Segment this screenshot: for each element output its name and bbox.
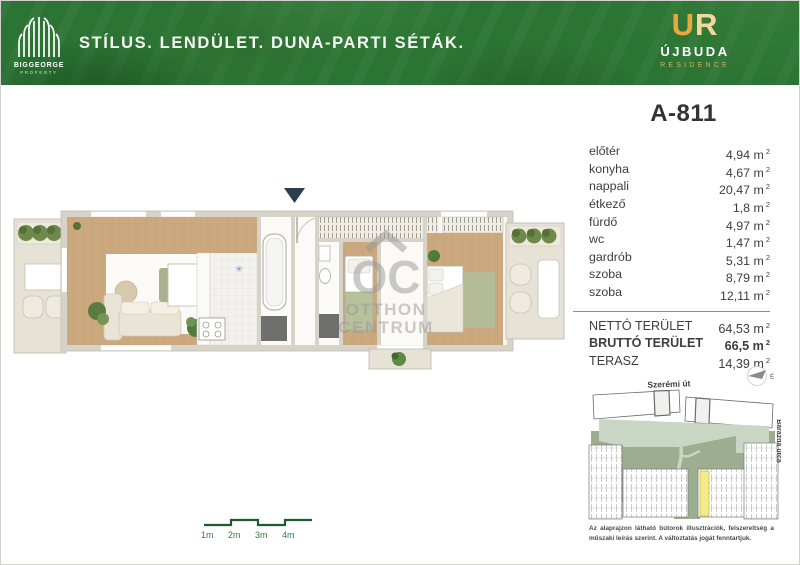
room-row: étkező1,8 m2 (589, 198, 770, 216)
total-name: BRUTTÓ TERÜLET (589, 336, 703, 354)
room-row: szoba12,11 m2 (589, 286, 770, 304)
plant-icon (186, 317, 196, 327)
wardrobe-shelving (317, 217, 437, 239)
terrace-right-plants (512, 229, 557, 244)
room-row: wc1,47 m2 (589, 233, 770, 251)
plant-icon (97, 313, 109, 325)
plant-icon (73, 222, 81, 230)
room-area: 5,31 m2 (726, 251, 770, 269)
room-name: konyha (589, 163, 629, 181)
header-banner: BIGGEORGE PROPERTY STÍLUS. LENDÜLET. DUN… (1, 1, 799, 85)
room-row: nappali20,47 m2 (589, 180, 770, 198)
total-row-gross: BRUTTÓ TERÜLET66,5 m2 (589, 336, 770, 354)
lounger (538, 260, 559, 318)
room-name: gardrób (589, 251, 632, 269)
room-area: 4,97 m2 (726, 216, 770, 234)
total-area: 64,53 m2 (718, 319, 770, 337)
svg-text:OC: OC (352, 251, 421, 303)
terrace-left-table (25, 264, 61, 290)
svg-text:CENTRUM: CENTRUM (338, 318, 434, 337)
site-plan: Szerémi út É Barázda ut (586, 363, 781, 523)
svg-text:3m: 3m (255, 530, 268, 540)
room-area: 20,47 m2 (719, 180, 770, 198)
terrace-left (14, 219, 66, 353)
unit-data-panel: A-811 előtér4,94 m2 konyha4,67 m2 nappal… (589, 100, 770, 371)
disclaimer-text: Az alaprajzon látható bútorok illusztrác… (589, 524, 774, 543)
washer (318, 314, 340, 338)
kitchen: ✳ (197, 253, 259, 345)
biggeorge-logo: BIGGEORGE PROPERTY (11, 7, 69, 79)
room-name: nappali (589, 180, 629, 198)
wardrobe-shelving (443, 217, 503, 233)
room-area: 4,67 m2 (726, 163, 770, 181)
plant-icon (428, 250, 440, 262)
dining-table (168, 264, 198, 306)
scale-line (204, 520, 312, 525)
room-row: szoba8,79 m2 (589, 268, 770, 286)
room-row: konyha4,67 m2 (589, 163, 770, 181)
total-row: NETTÓ TERÜLET64,53 m2 (589, 319, 770, 337)
svg-text:OTTHON: OTTHON (346, 300, 427, 319)
north-compass-icon: É (748, 367, 776, 386)
room-area: 1,47 m2 (726, 233, 770, 251)
street-label-right: Barázda utca (775, 419, 781, 463)
total-area: 66,5 m2 (725, 336, 770, 354)
terrace-left-plants (18, 225, 62, 241)
room-name: szoba (589, 268, 622, 286)
room-row: gardrób5,31 m2 (589, 251, 770, 269)
room-row: előtér4,94 m2 (589, 145, 770, 163)
street-label-top: Szerémi út (647, 378, 690, 390)
bedroom-large (425, 233, 503, 345)
room-row: fürdő4,97 m2 (589, 216, 770, 234)
sink (319, 246, 330, 261)
room-name: fürdő (589, 216, 617, 234)
ur-title: ÚJBUDA (645, 45, 745, 58)
toilet (320, 269, 331, 284)
room-name: étkező (589, 198, 626, 216)
north-label: É (770, 372, 775, 381)
ur-monogram-u: U (672, 7, 695, 42)
terrace-right-chair (510, 264, 531, 285)
ur-monogram: UR (645, 9, 745, 40)
room-area: 1,8 m2 (733, 198, 770, 216)
terrace-right (506, 223, 564, 339)
bathroom (259, 217, 293, 345)
terrace-left-chair (23, 296, 43, 318)
balcony-bottom (369, 349, 431, 369)
ur-subtitle: RESIDENCE (645, 62, 745, 69)
room-area: 4,94 m2 (726, 145, 770, 163)
biggeorge-name: BIGGEORGE (14, 62, 64, 69)
terrace-right-chair (510, 292, 531, 313)
listing-sheet: BIGGEORGE PROPERTY STÍLUS. LENDÜLET. DUN… (0, 0, 800, 565)
total-name: NETTÓ TERÜLET (589, 319, 692, 337)
entrance-arrow-icon (284, 188, 305, 203)
svg-text:1m: 1m (201, 530, 214, 540)
scale-bar: 1m 2m 3m 4m (198, 509, 318, 543)
totals-divider (573, 311, 770, 312)
ur-monogram-r: R (695, 7, 718, 42)
highlighted-unit (700, 471, 709, 516)
svg-text:2m: 2m (228, 530, 241, 540)
room-name: wc (589, 233, 604, 251)
stove (199, 318, 225, 340)
fridge-symbol: ✳ (235, 264, 243, 274)
floor-plan: ✳ (11, 176, 571, 371)
svg-text:4m: 4m (282, 530, 295, 540)
room-list: előtér4,94 m2 konyha4,67 m2 nappali20,47… (589, 145, 770, 304)
room-name: szoba (589, 286, 622, 304)
room-area: 12,11 m2 (720, 286, 770, 304)
scale-labels: 1m 2m 3m 4m (201, 530, 295, 540)
biggeorge-sub: PROPERTY (20, 70, 57, 75)
ujbuda-residence-logo: UR ÚJBUDA RESIDENCE (645, 9, 745, 69)
room-name: előtér (589, 145, 620, 163)
biggeorge-building-icon (19, 17, 59, 57)
campaign-slogan: STÍLUS. LENDÜLET. DUNA-PARTI SÉTÁK. (79, 1, 465, 85)
washer (261, 316, 287, 341)
room-area: 8,79 m2 (726, 268, 770, 286)
unit-id: A-811 (589, 100, 770, 128)
